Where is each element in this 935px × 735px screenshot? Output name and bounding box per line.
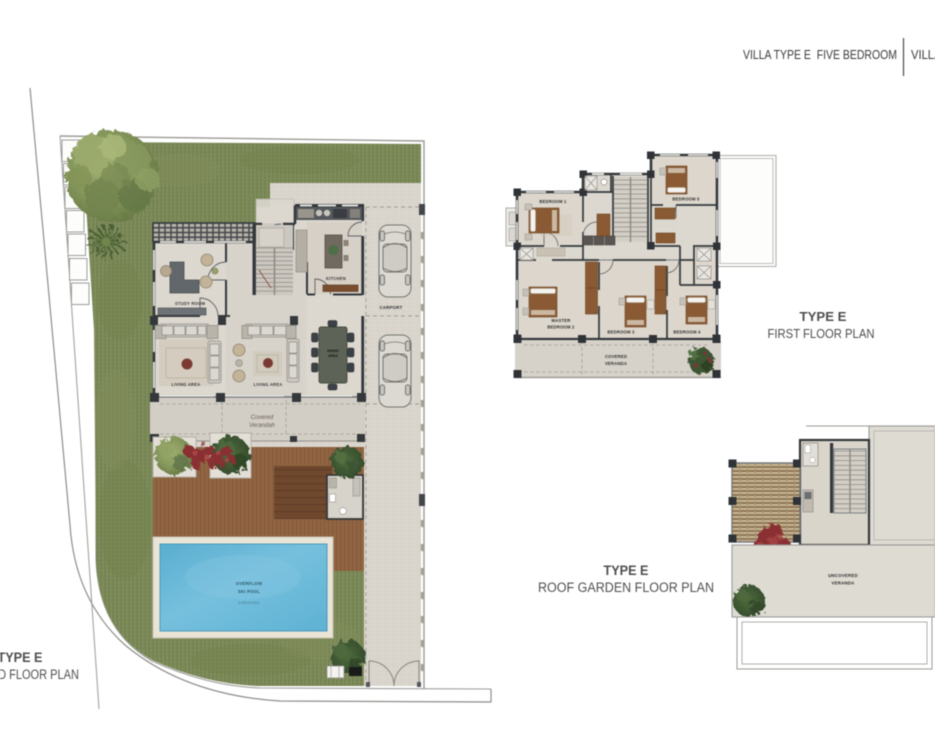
svg-text:BEDROOM 5: BEDROOM 5: [672, 197, 700, 202]
svg-text:CARPORT: CARPORT: [379, 305, 402, 310]
svg-text:Covered: Covered: [251, 415, 274, 421]
svg-text:FIRST FLOOR PLAN: FIRST FLOOR PLAN: [768, 326, 875, 341]
svg-text:UNCOVERED: UNCOVERED: [828, 573, 858, 578]
svg-text:TYPE E: TYPE E: [0, 650, 43, 665]
svg-text:AREA: AREA: [328, 354, 338, 358]
svg-text:GROUND FLOOR PLAN: GROUND FLOOR PLAN: [0, 667, 79, 682]
svg-text:OVERFLOW: OVERFLOW: [236, 581, 263, 586]
svg-text:ROOF GARDEN FLOOR PLAN: ROOF GARDEN FLOOR PLAN: [538, 580, 714, 595]
svg-text:BEDROOM 3: BEDROOM 3: [607, 330, 635, 335]
svg-text:VILLA TYPE: VILLA TYPE: [911, 48, 935, 62]
svg-text:STUDY ROOM: STUDY ROOM: [175, 301, 206, 306]
svg-text:VERANDA: VERANDA: [605, 361, 627, 366]
svg-text:MASTER: MASTER: [552, 318, 571, 323]
svg-text:5.00X10.00m: 5.00X10.00m: [238, 601, 259, 605]
svg-text:VILLA TYPE E FIVE BEDROOM: VILLA TYPE E FIVE BEDROOM: [743, 48, 897, 62]
svg-text:TYPE E: TYPE E: [800, 309, 847, 324]
svg-text:BEDROOM 2: BEDROOM 2: [547, 325, 575, 330]
svg-text:BEDROOM 1: BEDROOM 1: [539, 199, 567, 204]
svg-text:BEDROOM 4: BEDROOM 4: [673, 330, 701, 335]
svg-text:LIVING AREA: LIVING AREA: [253, 382, 282, 387]
svg-text:COVERED: COVERED: [605, 354, 627, 359]
svg-text:VERANDA: VERANDA: [831, 581, 855, 586]
svg-text:DINING: DINING: [327, 349, 339, 353]
svg-text:KITCHEN: KITCHEN: [326, 276, 346, 281]
svg-text:LIVING AREA: LIVING AREA: [171, 382, 200, 387]
svg-text:SKI POOL: SKI POOL: [238, 589, 260, 594]
svg-text:Verandah: Verandah: [249, 423, 275, 429]
svg-text:TYPE E: TYPE E: [604, 563, 649, 578]
